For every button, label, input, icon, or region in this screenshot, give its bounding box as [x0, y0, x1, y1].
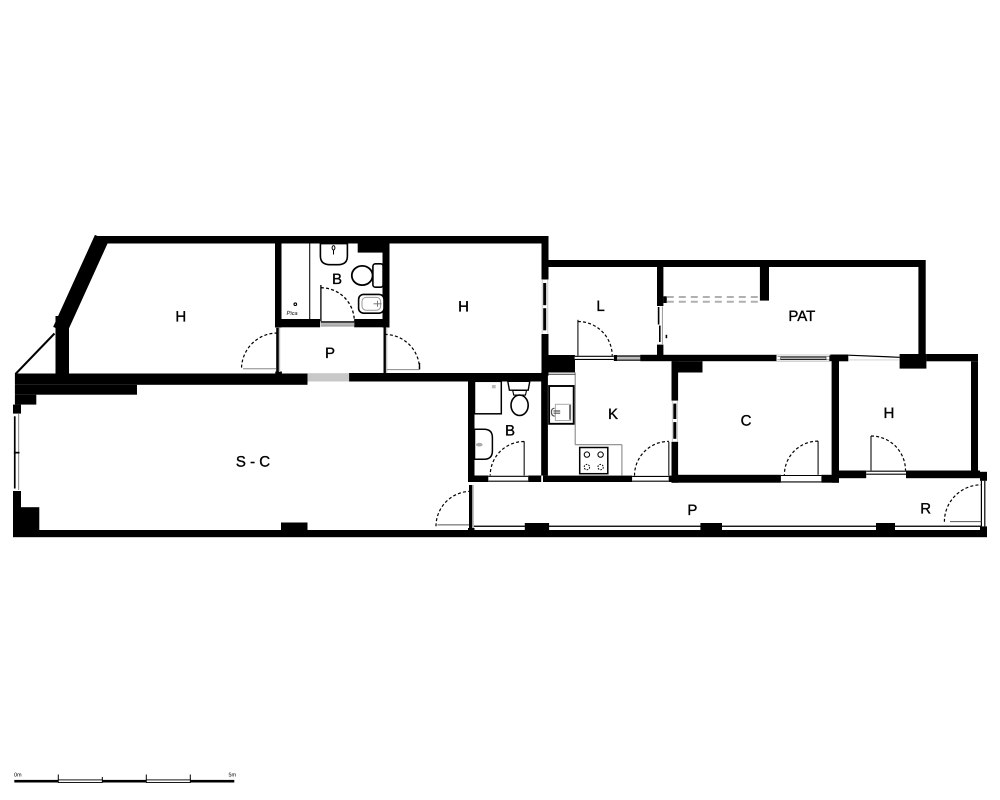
svg-text:L: L — [596, 298, 604, 315]
svg-text:R: R — [920, 501, 931, 518]
svg-text:5m: 5m — [229, 773, 237, 779]
svg-text:0m: 0m — [14, 773, 22, 779]
svg-text:P: P — [325, 345, 335, 362]
svg-text:P: P — [687, 502, 697, 519]
svg-text:H: H — [458, 298, 469, 315]
svg-text:Pica: Pica — [287, 310, 298, 317]
svg-text:PAT: PAT — [788, 308, 815, 325]
svg-text:S - C: S - C — [236, 453, 270, 470]
svg-text:K: K — [608, 406, 618, 423]
svg-text:B: B — [505, 422, 515, 439]
svg-text:H: H — [175, 309, 186, 326]
svg-text:H: H — [883, 405, 894, 422]
svg-text:C: C — [741, 412, 752, 429]
svg-text:B: B — [332, 271, 342, 288]
